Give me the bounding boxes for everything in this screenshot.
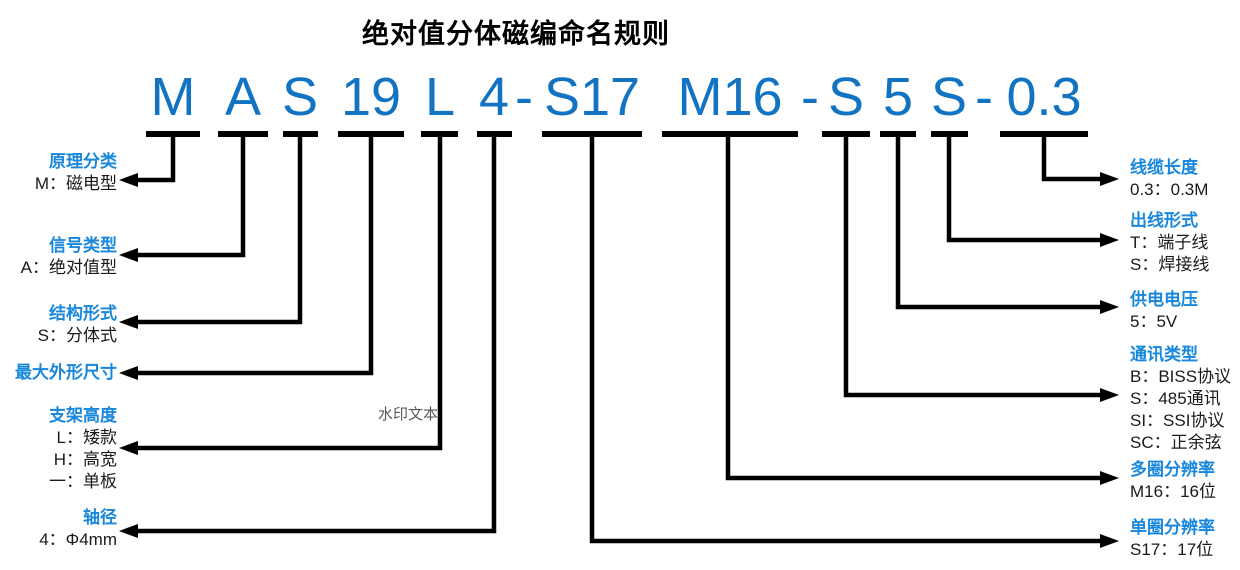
label-title: 原理分类 (35, 151, 117, 173)
connector-wire (949, 134, 1102, 240)
label-title: 出线形式 (1130, 210, 1209, 232)
label-value: SI：SSI协议 (1130, 410, 1231, 432)
arrowhead-principle (119, 173, 138, 187)
label-value: L：矮款 (49, 427, 117, 449)
arrowhead-comm (1100, 388, 1119, 402)
connector-bracket (136, 134, 440, 448)
label-value: M16：16位 (1130, 481, 1216, 503)
connector-voltage (898, 134, 1102, 307)
label-title: 最大外形尺寸 (15, 362, 117, 384)
arrowhead-bracket (119, 441, 138, 455)
label-title: 单圈分辨率 (1130, 517, 1215, 539)
label-group-shaft: 轴径 4：Φ4mm (39, 507, 117, 551)
right-connectors (592, 134, 1102, 541)
naming-rule-diagram: 绝对值分体磁编命名规则 M A S 19 L 4 - S17 M16 - S 5… (0, 0, 1240, 570)
label-group-single-turn: 单圈分辨率 S17：17位 (1130, 517, 1215, 561)
label-title: 支架高度 (49, 405, 117, 427)
connector-principle (136, 134, 173, 180)
label-group-size: 最大外形尺寸 (15, 362, 117, 384)
label-value: A：绝对值型 (21, 257, 117, 279)
connector-structure (136, 134, 300, 322)
right-arrowheads (1100, 172, 1119, 548)
arrowhead-structure (119, 315, 138, 329)
arrowhead-signal (119, 248, 138, 262)
label-value: B：BISS协议 (1130, 366, 1231, 388)
label-value: S：焊接线 (1130, 254, 1209, 276)
label-value: SC：正余弦 (1130, 432, 1231, 454)
label-group-principle: 原理分类 M：磁电型 (35, 151, 117, 195)
connector-cable-length (1044, 134, 1102, 179)
label-title: 轴径 (39, 507, 117, 529)
label-value: S：485通讯 (1130, 388, 1231, 410)
label-group-bracket: 支架高度 L：矮款 H：高宽 一：单板 (49, 405, 117, 493)
left-connectors (136, 134, 494, 531)
label-value: 4：Φ4mm (39, 529, 117, 551)
label-group-voltage: 供电电压 5：5V (1130, 289, 1198, 333)
label-value: H：高宽 (49, 449, 117, 471)
arrowhead-shaft (119, 524, 138, 538)
label-group-structure: 结构形式 S：分体式 (38, 303, 117, 347)
watermark-text: 水印文本 (378, 403, 438, 424)
label-value: 0.3：0.3M (1130, 179, 1208, 201)
label-value: T：端子线 (1130, 232, 1209, 254)
label-value: 一：单板 (49, 471, 117, 493)
arrowhead-multi-turn (1100, 471, 1119, 485)
label-group-signal: 信号类型 A：绝对值型 (21, 235, 117, 279)
label-title: 供电电压 (1130, 289, 1198, 311)
label-title: 通讯类型 (1130, 344, 1231, 366)
label-value: 5：5V (1130, 311, 1198, 333)
label-value: S17：17位 (1130, 539, 1215, 561)
label-group-multi-turn: 多圈分辨率 M16：16位 (1130, 459, 1216, 503)
label-value: S：分体式 (38, 325, 117, 347)
label-title: 线缆长度 (1130, 157, 1208, 179)
label-group-cable-length: 线缆长度 0.3：0.3M (1130, 157, 1208, 201)
arrowhead-voltage (1100, 300, 1119, 314)
label-group-comm: 通讯类型 B：BISS协议 S：485通讯 SI：SSI协议 SC：正余弦 (1130, 344, 1231, 454)
arrowhead-size (119, 366, 138, 380)
label-title: 多圈分辨率 (1130, 459, 1216, 481)
label-value: M：磁电型 (35, 173, 117, 195)
arrowhead-cable-length (1100, 172, 1119, 186)
connector-lines (0, 0, 1240, 570)
left-arrowheads (119, 173, 138, 538)
connector-comm (846, 134, 1102, 395)
arrowhead-wire (1100, 233, 1119, 247)
arrowhead-single-turn (1100, 534, 1119, 548)
connector-signal (136, 134, 243, 255)
label-group-wire: 出线形式 T：端子线 S：焊接线 (1130, 210, 1209, 276)
label-title: 结构形式 (38, 303, 117, 325)
label-title: 信号类型 (21, 235, 117, 257)
